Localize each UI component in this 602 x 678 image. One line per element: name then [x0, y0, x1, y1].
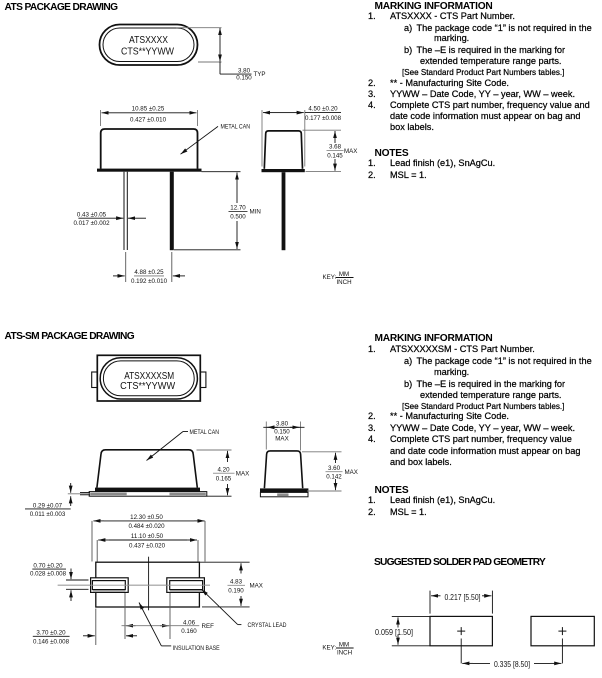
svg-text:MAX: MAX	[345, 469, 358, 476]
svg-text:10.85 ±0.25: 10.85 ±0.25	[132, 106, 165, 113]
svg-text:0.500: 0.500	[230, 213, 246, 220]
svg-text:3.80: 3.80	[276, 421, 289, 428]
svg-text:0.017 ±0.002: 0.017 ±0.002	[73, 220, 110, 227]
svg-text:0.059 [1.50]: 0.059 [1.50]	[375, 628, 413, 637]
svg-text:CRYSTAL LEAD: CRYSTAL LEAD	[248, 622, 287, 629]
svg-text:4.88 ±0.25: 4.88 ±0.25	[134, 269, 164, 276]
svg-text:0.145: 0.145	[327, 152, 343, 159]
svg-text:INSULATION BASE: INSULATION BASE	[173, 645, 220, 652]
svg-text:CTS**YYWW: CTS**YYWW	[120, 381, 176, 392]
svg-text:11.10 ±0.50: 11.10 ±0.50	[131, 533, 164, 540]
svg-text:0.150: 0.150	[274, 429, 290, 436]
svg-text:METAL CAN: METAL CAN	[190, 429, 220, 436]
svg-text:REF: REF	[202, 623, 215, 630]
svg-text:0.160: 0.160	[181, 628, 197, 635]
svg-text:0.190: 0.190	[228, 588, 244, 595]
svg-text:TYP: TYP	[254, 71, 266, 78]
svg-text:MIN: MIN	[250, 208, 261, 215]
svg-text:0.011 ±0.003: 0.011 ±0.003	[30, 511, 66, 518]
svg-text:3.68: 3.68	[329, 144, 342, 151]
svg-text:12.30 ±0.50: 12.30 ±0.50	[130, 514, 163, 521]
svg-text:MAX: MAX	[250, 582, 263, 589]
svg-text:3.80: 3.80	[238, 67, 251, 74]
svg-text:0.70 ±0.20: 0.70 ±0.20	[33, 562, 63, 569]
svg-text:4.50 ±0.20: 4.50 ±0.20	[308, 105, 338, 112]
svg-text:MAX: MAX	[344, 148, 357, 155]
svg-text:0.217 [5.50]: 0.217 [5.50]	[445, 593, 481, 602]
svg-text:0.146 ±0.008: 0.146 ±0.008	[33, 638, 70, 645]
svg-text:ATSXXXX: ATSXXXX	[129, 35, 168, 46]
svg-text:0.427 ±0.010: 0.427 ±0.010	[130, 116, 167, 123]
svg-text:3.60: 3.60	[328, 465, 341, 472]
svg-text:KEY:: KEY:	[323, 274, 337, 281]
svg-text:INCH: INCH	[337, 650, 352, 657]
svg-text:0.484 ±0.020: 0.484 ±0.020	[128, 523, 165, 530]
svg-text:0.150: 0.150	[236, 75, 252, 82]
svg-text:0.43 ±0.05: 0.43 ±0.05	[77, 211, 107, 218]
svg-text:0.335 [8.50]: 0.335 [8.50]	[494, 660, 530, 669]
svg-text:0.192 ±0.010: 0.192 ±0.010	[131, 278, 168, 285]
svg-text:0.028 ±0.008: 0.028 ±0.008	[30, 571, 67, 578]
svg-text:3.70 ±0.20: 3.70 ±0.20	[36, 630, 66, 637]
svg-text:METAL CAN: METAL CAN	[221, 124, 251, 131]
svg-text:MAX: MAX	[275, 436, 288, 443]
svg-text:4.20: 4.20	[217, 467, 230, 474]
svg-text:INCH: INCH	[336, 279, 351, 286]
svg-text:MAX: MAX	[236, 471, 249, 478]
svg-text:0.29 ±0.07: 0.29 ±0.07	[33, 502, 63, 509]
svg-text:KEY:: KEY:	[322, 644, 336, 651]
svg-text:12.70: 12.70	[230, 204, 246, 211]
svg-text:0.437 ±0.020: 0.437 ±0.020	[129, 542, 166, 549]
svg-text:MM: MM	[339, 642, 349, 649]
svg-text:MM: MM	[339, 271, 349, 278]
svg-text:0.142: 0.142	[326, 473, 342, 480]
svg-text:0.177 ±0.008: 0.177 ±0.008	[305, 115, 342, 122]
svg-text:4.06: 4.06	[183, 619, 196, 626]
svg-text:0.165: 0.165	[216, 476, 232, 483]
svg-text:CTS**YYWW: CTS**YYWW	[121, 47, 174, 58]
svg-text:4.83: 4.83	[230, 579, 243, 586]
